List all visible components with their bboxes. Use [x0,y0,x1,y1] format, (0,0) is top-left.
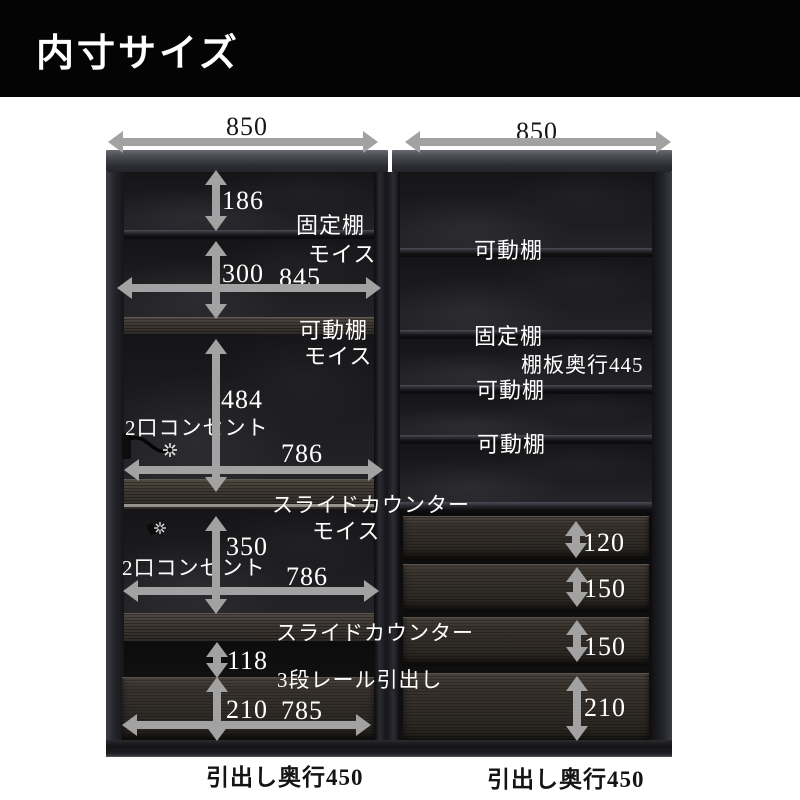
arrowhead-down [566,726,588,741]
arrowhead-right [366,277,381,299]
dim-484: 484 [221,385,263,415]
arrow-118 [206,642,228,678]
arrow-186 [205,170,227,231]
label-movable-shelf-r3: 可動棚 [477,427,546,459]
cabinet-base [106,740,672,757]
label-slide-counter-lower: スライドカウンター [276,617,474,647]
arrow-shaft [134,721,359,729]
arrowhead-down [566,592,588,607]
header-banner: 内寸サイズ [0,0,800,97]
product-dimension-diagram: 内寸サイズ [0,0,800,800]
label-movable-shelf-r1: 可動棚 [474,233,543,265]
arrow-shaft [136,466,371,474]
label-outlet-upper: 2口コンセント [125,412,269,442]
arrow-845 [117,277,381,299]
label-moiss-1: モイス [308,237,376,269]
arrow-shaft [135,587,367,595]
dim-150-lower: 150 [584,632,626,662]
label-fixed-shelf-right: 固定棚 [474,319,543,351]
arrowhead-down [566,647,588,662]
right-cabinet-side-wall [652,172,672,755]
label-3-rail-drawer: 3段レール引出し [277,664,443,694]
arrow-150-upper [566,567,588,607]
label-moiss-2: モイス [304,339,372,371]
arrowhead-right [356,714,371,736]
arrow-210-right [566,676,588,741]
arrow-786-upper [124,459,383,481]
arrowhead-right [364,580,379,602]
dim-120: 120 [583,528,625,558]
label-movable-shelf-r2: 可動棚 [476,373,545,405]
arrowhead-right [656,131,671,153]
arrow-120 [565,521,587,558]
arrowhead-down [206,663,228,678]
arrow-shaft [120,138,366,146]
arrowhead-down [205,216,227,231]
label-moiss-3: モイス [312,514,380,546]
left-cabinet-top-board [106,150,388,172]
label-drawer-depth-left: 引出し奥行450 [206,758,364,792]
arrow-850-left [108,131,378,153]
arrow-785 [122,714,371,736]
dim-210-right: 210 [584,693,626,723]
power-cord-graphic-lower [146,518,170,538]
right-cabinet-top-board [392,150,672,172]
dim-186: 186 [222,186,264,216]
arrowhead-down [205,304,227,319]
arrow-786-lower [123,580,379,602]
dim-150-upper: 150 [584,574,626,604]
arrowhead-down [565,543,587,558]
label-drawer-depth-right: 引出し奥行450 [487,760,645,794]
arrow-shaft [129,284,369,292]
arrowhead-right [363,131,378,153]
arrow-shaft [212,182,220,219]
label-outlet-lower: 2口コンセント [122,552,266,582]
arrow-shaft [417,138,659,146]
arrow-850-right [405,131,671,153]
dim-118: 118 [227,646,268,676]
arrow-150-lower [566,620,588,662]
arrowhead-right [368,459,383,481]
label-fixed-shelf-left: 固定棚 [296,208,365,240]
page-title: 内寸サイズ [36,22,240,77]
arrow-shaft [573,688,581,729]
